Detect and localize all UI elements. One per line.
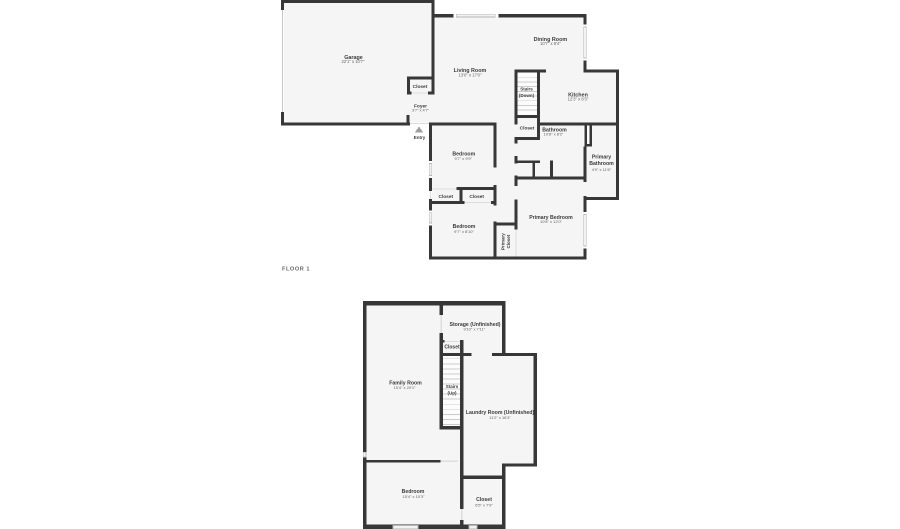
svg-text:6'5" x 7'9": 6'5" x 7'9" <box>475 502 493 507</box>
svg-text:4'9" x 11'6": 4'9" x 11'6" <box>592 167 612 172</box>
svg-text:Closet: Closet <box>506 234 511 248</box>
svg-text:Closet: Closet <box>444 345 460 351</box>
svg-text:10'7" x 8'4": 10'7" x 8'4" <box>540 41 561 46</box>
svg-text:Stairs: Stairs <box>446 384 459 389</box>
svg-text:Closet: Closet <box>469 194 484 200</box>
svg-text:(Up): (Up) <box>448 390 457 395</box>
svg-text:FLOOR 1: FLOOR 1 <box>282 266 310 272</box>
svg-text:9'7" x 8'10": 9'7" x 8'10" <box>454 229 474 234</box>
svg-text:Primary: Primary <box>501 233 506 250</box>
svg-text:15'4" x 10'3": 15'4" x 10'3" <box>403 494 426 499</box>
svg-text:Stairs: Stairs <box>520 87 533 92</box>
svg-text:10'8" x 12'0": 10'8" x 12'0" <box>540 219 563 224</box>
svg-text:Closet: Closet <box>438 194 453 200</box>
svg-text:Primary: Primary <box>592 155 611 161</box>
svg-text:Entry: Entry <box>414 135 426 140</box>
svg-text:3'7" x 4'7": 3'7" x 4'7" <box>412 108 430 113</box>
svg-text:10'8" x 8'2": 10'8" x 8'2" <box>544 132 564 137</box>
svg-text:12'3" x 8'3": 12'3" x 8'3" <box>568 97 589 102</box>
svg-text:22'1" x 10'7": 22'1" x 10'7" <box>342 59 365 64</box>
svg-text:11'2" x 16'3": 11'2" x 16'3" <box>489 415 511 420</box>
svg-text:Closet: Closet <box>520 126 535 132</box>
svg-text:13'0" x 17'0": 13'0" x 17'0" <box>459 72 482 77</box>
svg-text:9'7" x 9'9": 9'7" x 9'9" <box>455 156 473 161</box>
svg-text:Closet: Closet <box>413 84 428 90</box>
svg-text:15'4" x 20'1": 15'4" x 20'1" <box>394 385 417 390</box>
svg-text:Bathroom: Bathroom <box>589 161 614 167</box>
svg-text:9'10" x 7'11": 9'10" x 7'11" <box>463 326 485 331</box>
svg-text:(Down): (Down) <box>519 93 535 98</box>
